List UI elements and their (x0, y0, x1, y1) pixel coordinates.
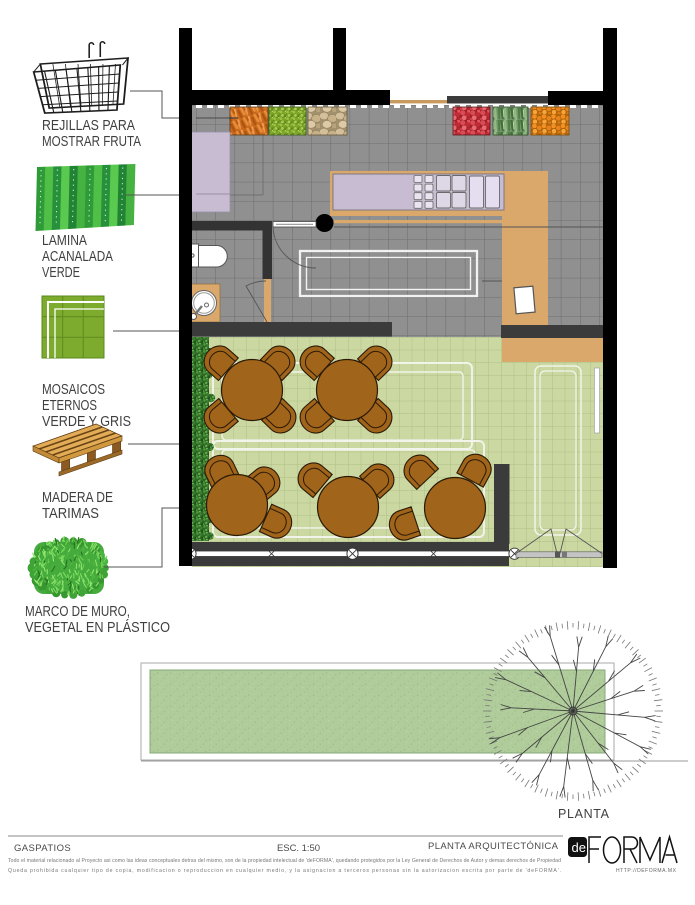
svg-text:ACANALADA: ACANALADA (42, 248, 113, 265)
svg-text:Todo el material relacionado a: Todo el material relacionado al Proyecto… (8, 858, 561, 864)
svg-text:MADERA DE: MADERA DE (42, 489, 113, 506)
svg-text:MOSTRAR FRUTA: MOSTRAR FRUTA (42, 133, 141, 150)
svg-text:de: de (572, 840, 586, 855)
svg-text:REJILLAS PARA: REJILLAS PARA (42, 117, 135, 134)
svg-text:LAMINA: LAMINA (42, 232, 87, 249)
svg-text:HTTP://DEFORMA.MX: HTTP://DEFORMA.MX (616, 868, 677, 874)
svg-text:PLANTA: PLANTA (558, 807, 610, 821)
svg-text:VEGETAL EN PLÁSTICO: VEGETAL EN PLÁSTICO (25, 619, 170, 636)
svg-text:ETERNOS: ETERNOS (42, 397, 97, 414)
svg-text:ESC. 1:50: ESC. 1:50 (277, 843, 320, 854)
svg-text:Queda prohibida cualquier t: Queda prohibida cualquier tipo de copia,… (8, 868, 561, 874)
svg-text:GASPATIOS: GASPATIOS (14, 843, 71, 854)
svg-text:TARIMAS: TARIMAS (42, 505, 99, 522)
svg-text:VERDE: VERDE (42, 264, 80, 281)
svg-text:MOSAICOS: MOSAICOS (42, 381, 105, 398)
svg-text:MARCO DE MURO,: MARCO DE MURO, (25, 603, 130, 620)
svg-text:PLANTA ARQUITECTÓNICA: PLANTA ARQUITECTÓNICA (428, 841, 559, 852)
